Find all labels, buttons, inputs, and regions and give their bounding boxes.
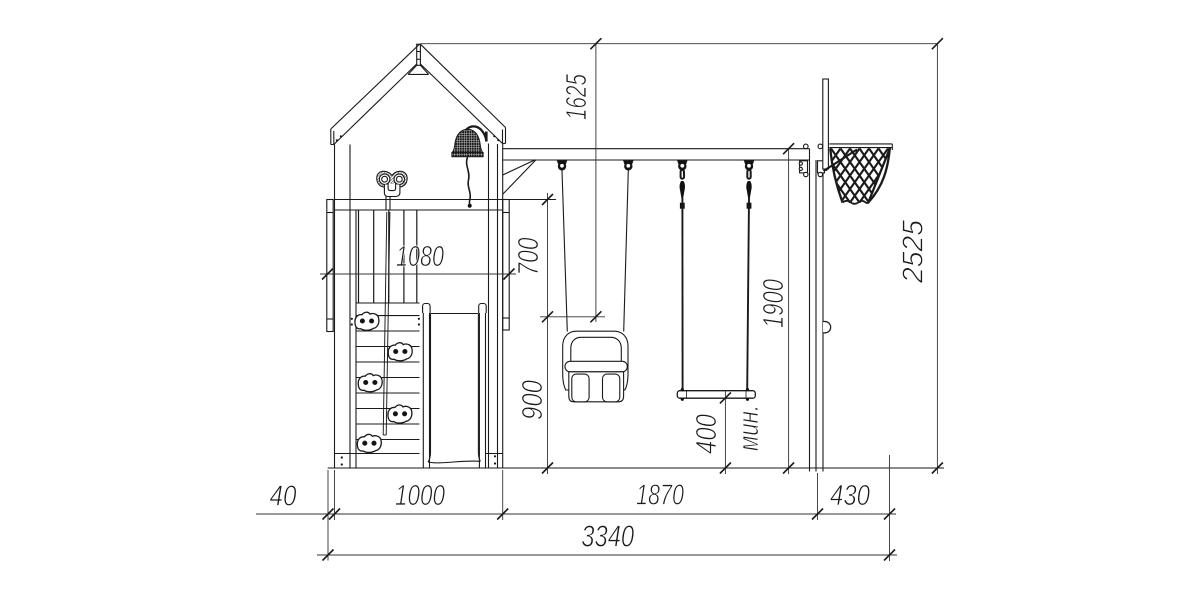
svg-text:3340: 3340 bbox=[581, 519, 634, 554]
svg-text:мин.: мин. bbox=[733, 405, 765, 451]
svg-text:1080: 1080 bbox=[396, 241, 444, 273]
svg-text:1900: 1900 bbox=[758, 279, 790, 328]
svg-text:400: 400 bbox=[691, 414, 723, 454]
svg-text:2525: 2525 bbox=[898, 219, 930, 284]
svg-text:40: 40 bbox=[270, 481, 297, 513]
svg-text:700: 700 bbox=[513, 238, 545, 276]
svg-text:430: 430 bbox=[830, 480, 870, 512]
svg-text:900: 900 bbox=[517, 380, 549, 420]
svg-text:1625: 1625 bbox=[561, 73, 593, 120]
svg-text:1000: 1000 bbox=[395, 480, 445, 512]
svg-text:1870: 1870 bbox=[636, 480, 684, 512]
